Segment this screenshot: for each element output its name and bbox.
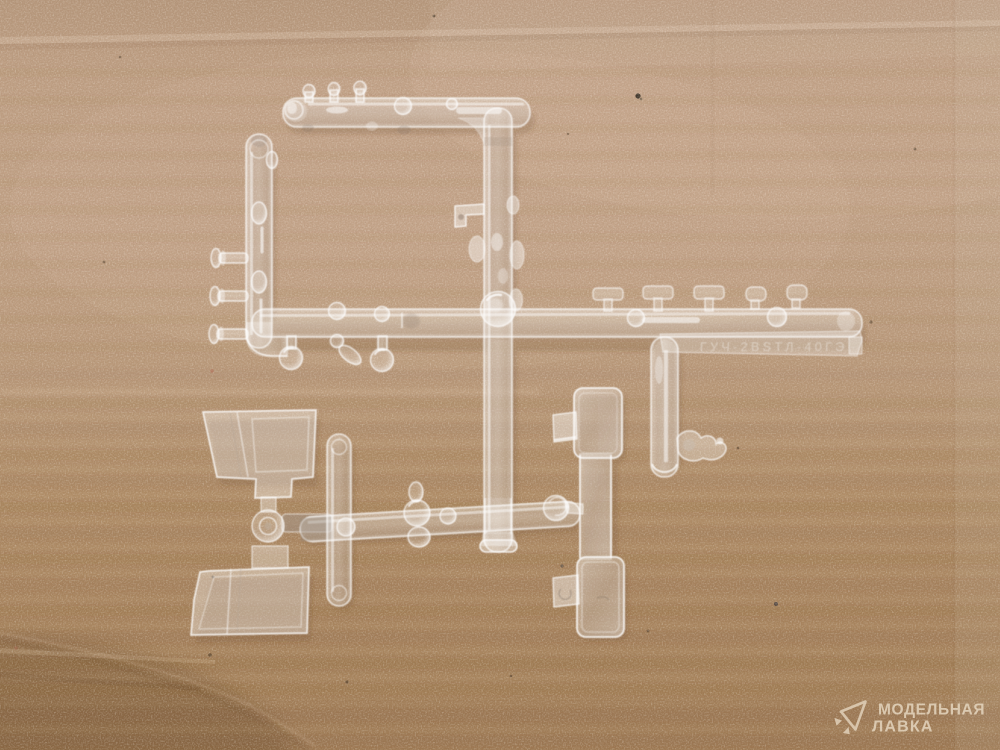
svg-text:ЛАВКА: ЛАВКА [872, 719, 934, 736]
svg-text:МОДЕЛЬНАЯ: МОДЕЛЬНАЯ [878, 702, 985, 719]
svg-text:ГУЧ-2ВSТЛ-40ГЭ: ГУЧ-2ВSТЛ-40ГЭ [700, 340, 848, 354]
